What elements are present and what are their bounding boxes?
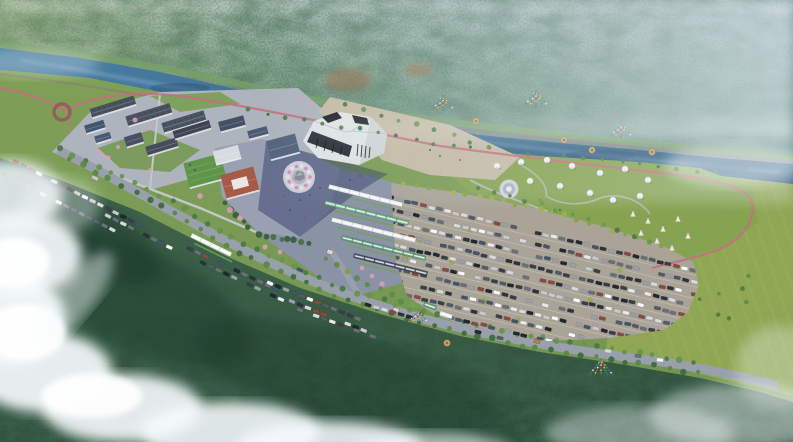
scene-canvas xyxy=(0,0,793,442)
aerial-rendering xyxy=(0,0,793,442)
